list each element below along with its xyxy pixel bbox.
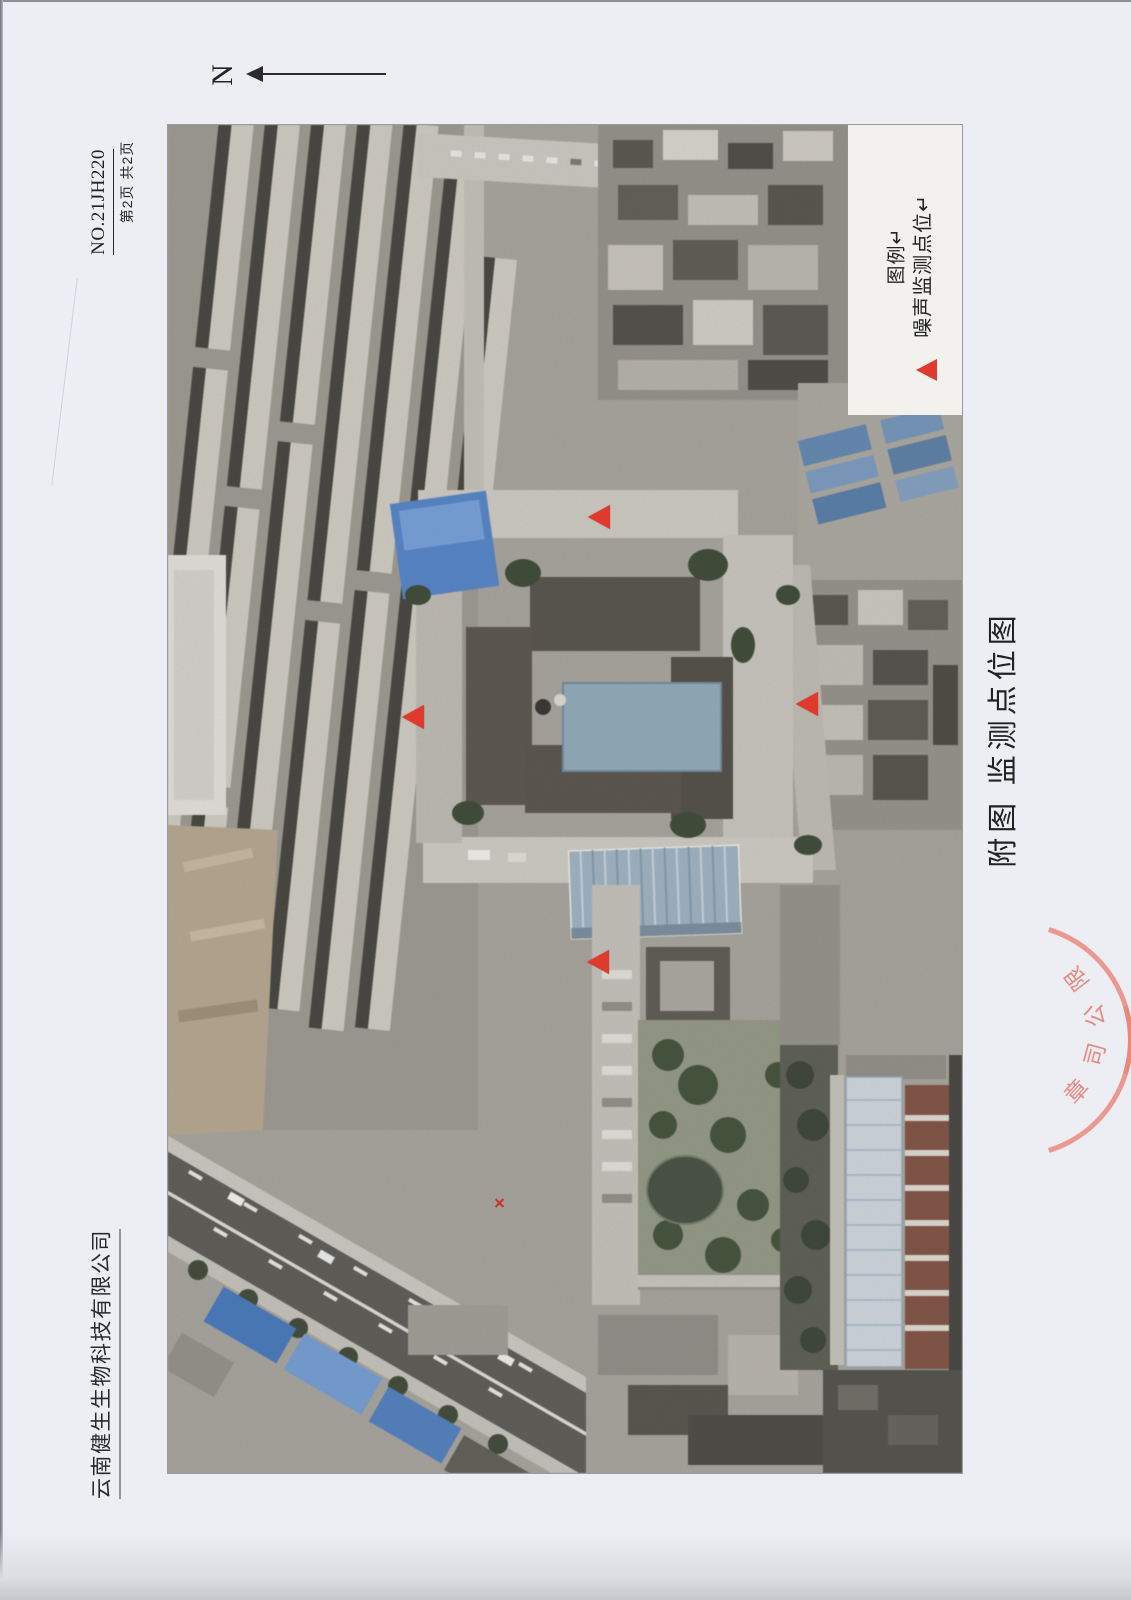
north-arrow-line [262, 73, 386, 75]
figure-caption: 附图 监测点位图 [978, 610, 1022, 868]
legend-noise-marker-icon [916, 359, 937, 381]
paper-crease [51, 279, 77, 486]
legend-title: 图例↵ [882, 228, 909, 285]
scan-edge-left [0, 0, 3, 1600]
satellite-map-art [168, 125, 962, 1473]
scanned-report-page: { "page": { "doc_no": "NO.21JH220", "pag… [0, 0, 1131, 1600]
north-label: N [206, 64, 240, 86]
page-number: 第2页 共2页 [117, 141, 137, 223]
document-number: NO.21JH220 [88, 149, 114, 255]
legend-item-label: 噪声监测点位↵ [907, 194, 936, 338]
scan-edge-bottom [0, 1530, 1131, 1600]
satellite-map-figure [168, 125, 962, 1473]
company-footer: 云南健生生物科技有限公司 [86, 1229, 121, 1499]
north-arrow-icon [246, 66, 263, 82]
scan-edge-top [0, 0, 1131, 2]
